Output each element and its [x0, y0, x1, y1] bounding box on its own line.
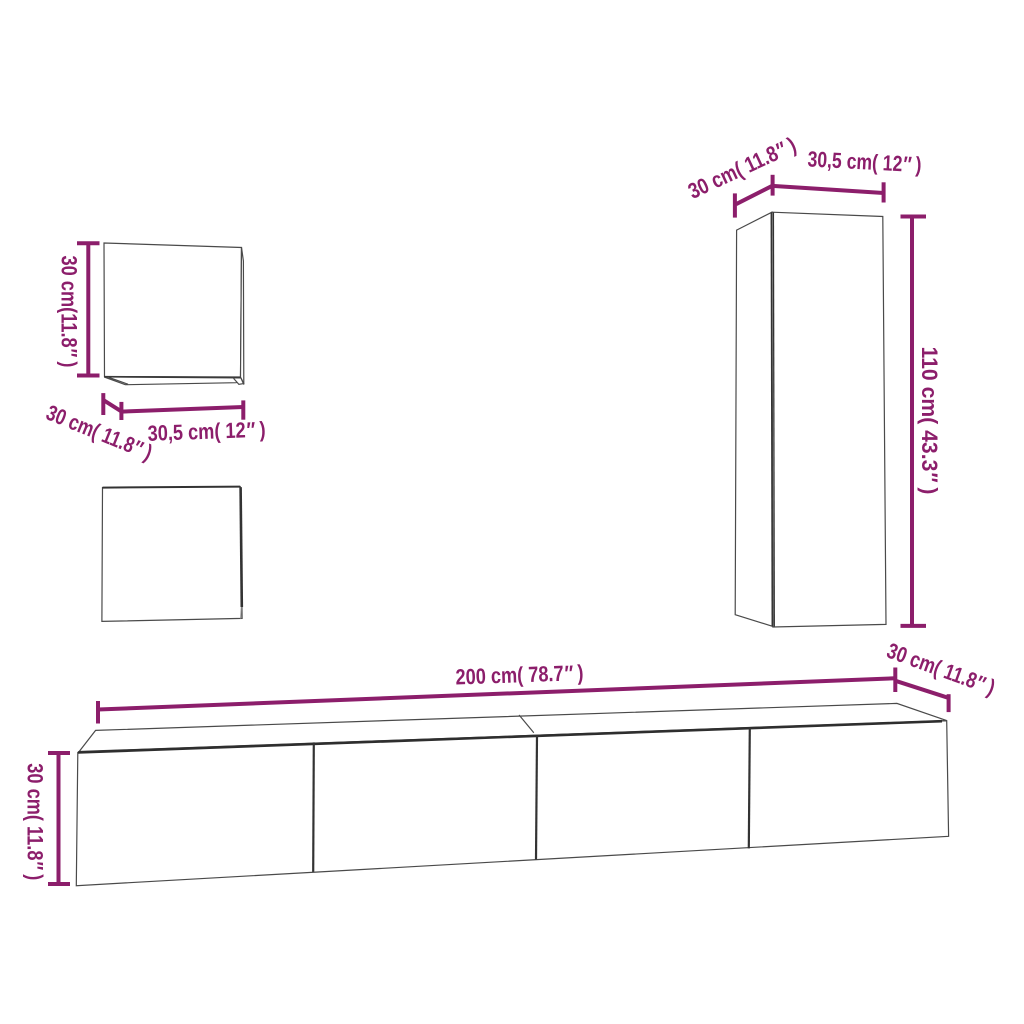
svg-text:30 cm( 11.8″ ): 30 cm( 11.8″ )	[23, 763, 48, 880]
svg-text:110 cm( 43.3″ ): 110 cm( 43.3″ )	[917, 347, 942, 495]
svg-text:30,5 cm( 12″ ): 30,5 cm( 12″ )	[147, 417, 266, 446]
svg-text:30 cm(11.8″ ): 30 cm(11.8″ )	[56, 256, 81, 368]
svg-text:200 cm( 78.7″ ): 200 cm( 78.7″ )	[455, 660, 584, 689]
